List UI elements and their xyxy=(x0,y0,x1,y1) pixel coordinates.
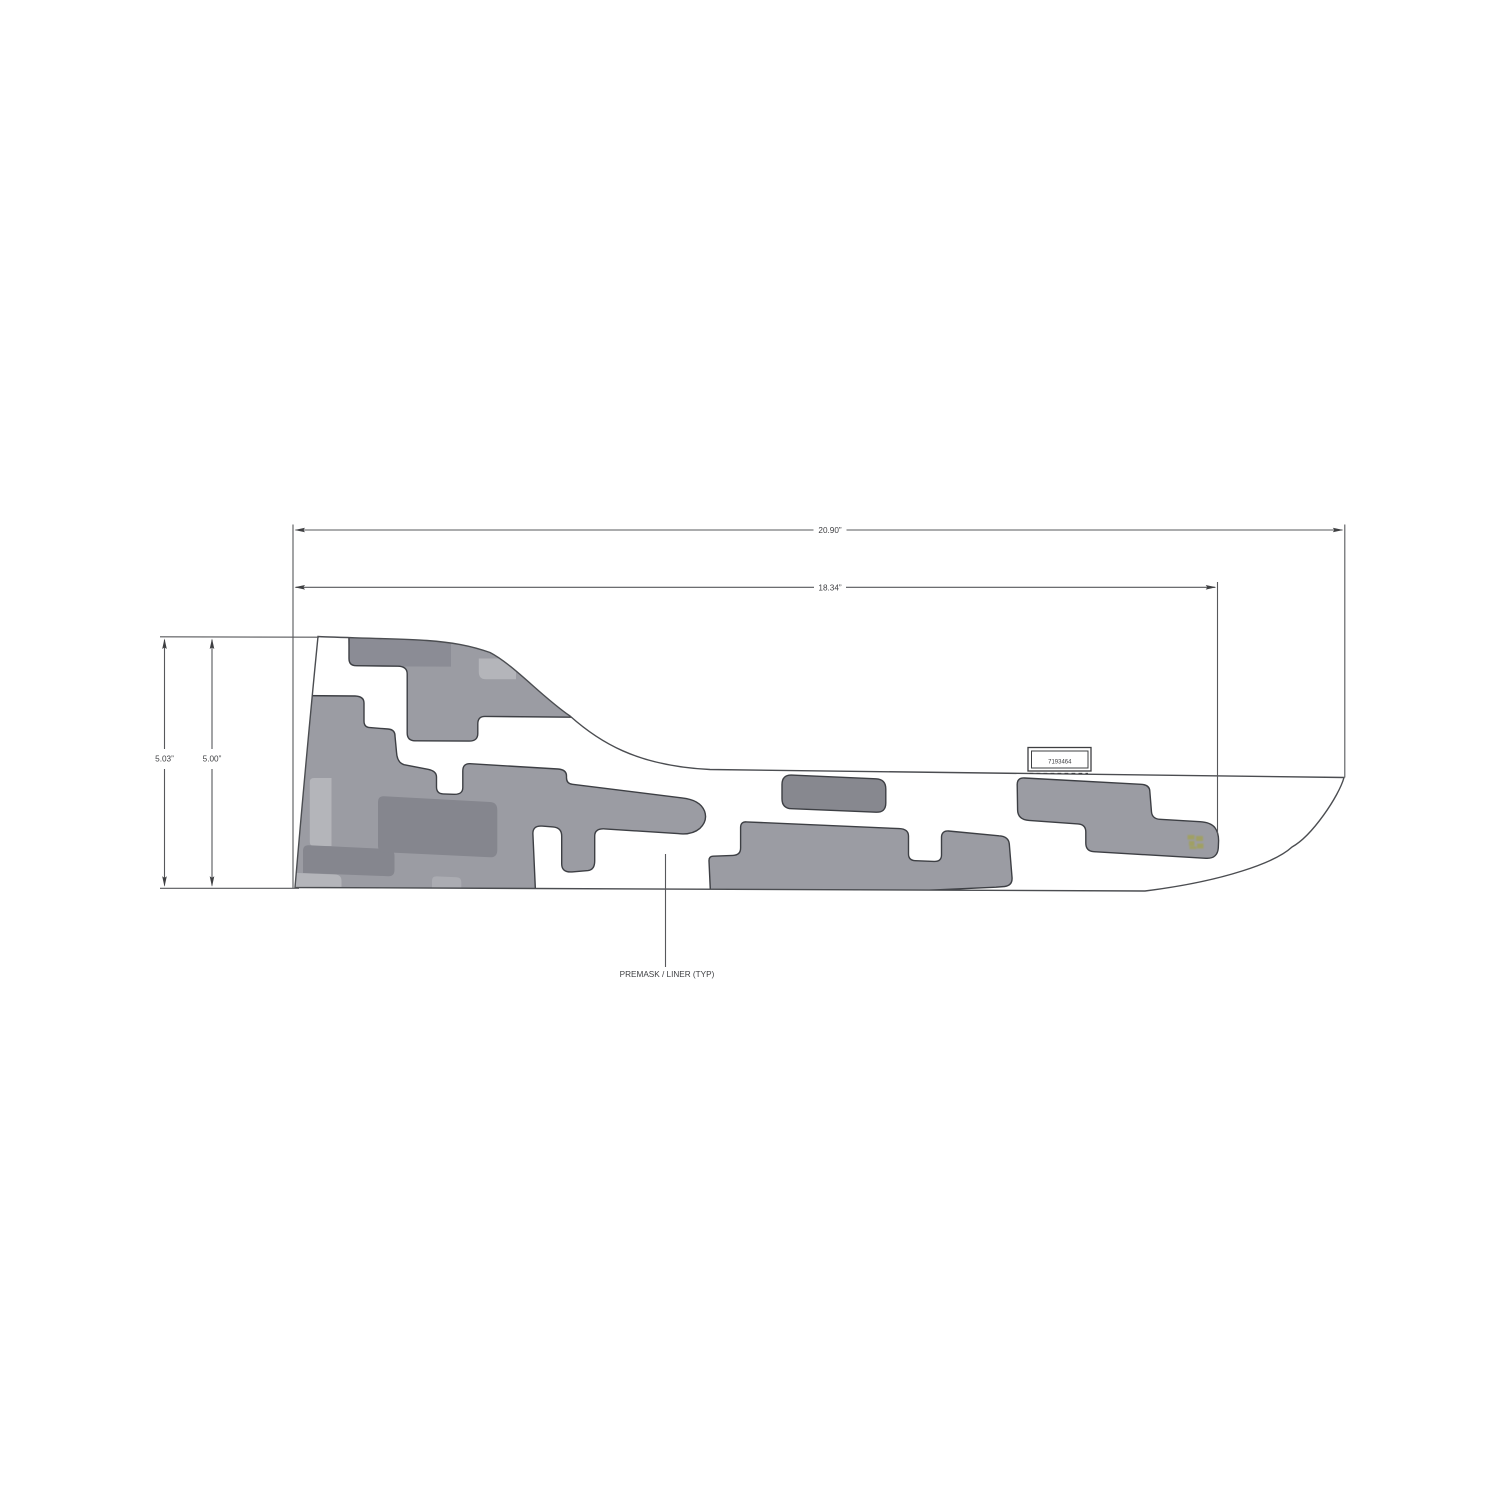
svg-text:5.03”: 5.03” xyxy=(155,755,174,764)
svg-text:18.34”: 18.34” xyxy=(818,583,841,592)
svg-text:5.00”: 5.00” xyxy=(203,755,222,764)
svg-text:7193464: 7193464 xyxy=(1048,760,1072,766)
svg-text:PREMASK / LINER (TYP): PREMASK / LINER (TYP) xyxy=(620,970,715,979)
svg-text:20.90”: 20.90” xyxy=(818,526,841,535)
